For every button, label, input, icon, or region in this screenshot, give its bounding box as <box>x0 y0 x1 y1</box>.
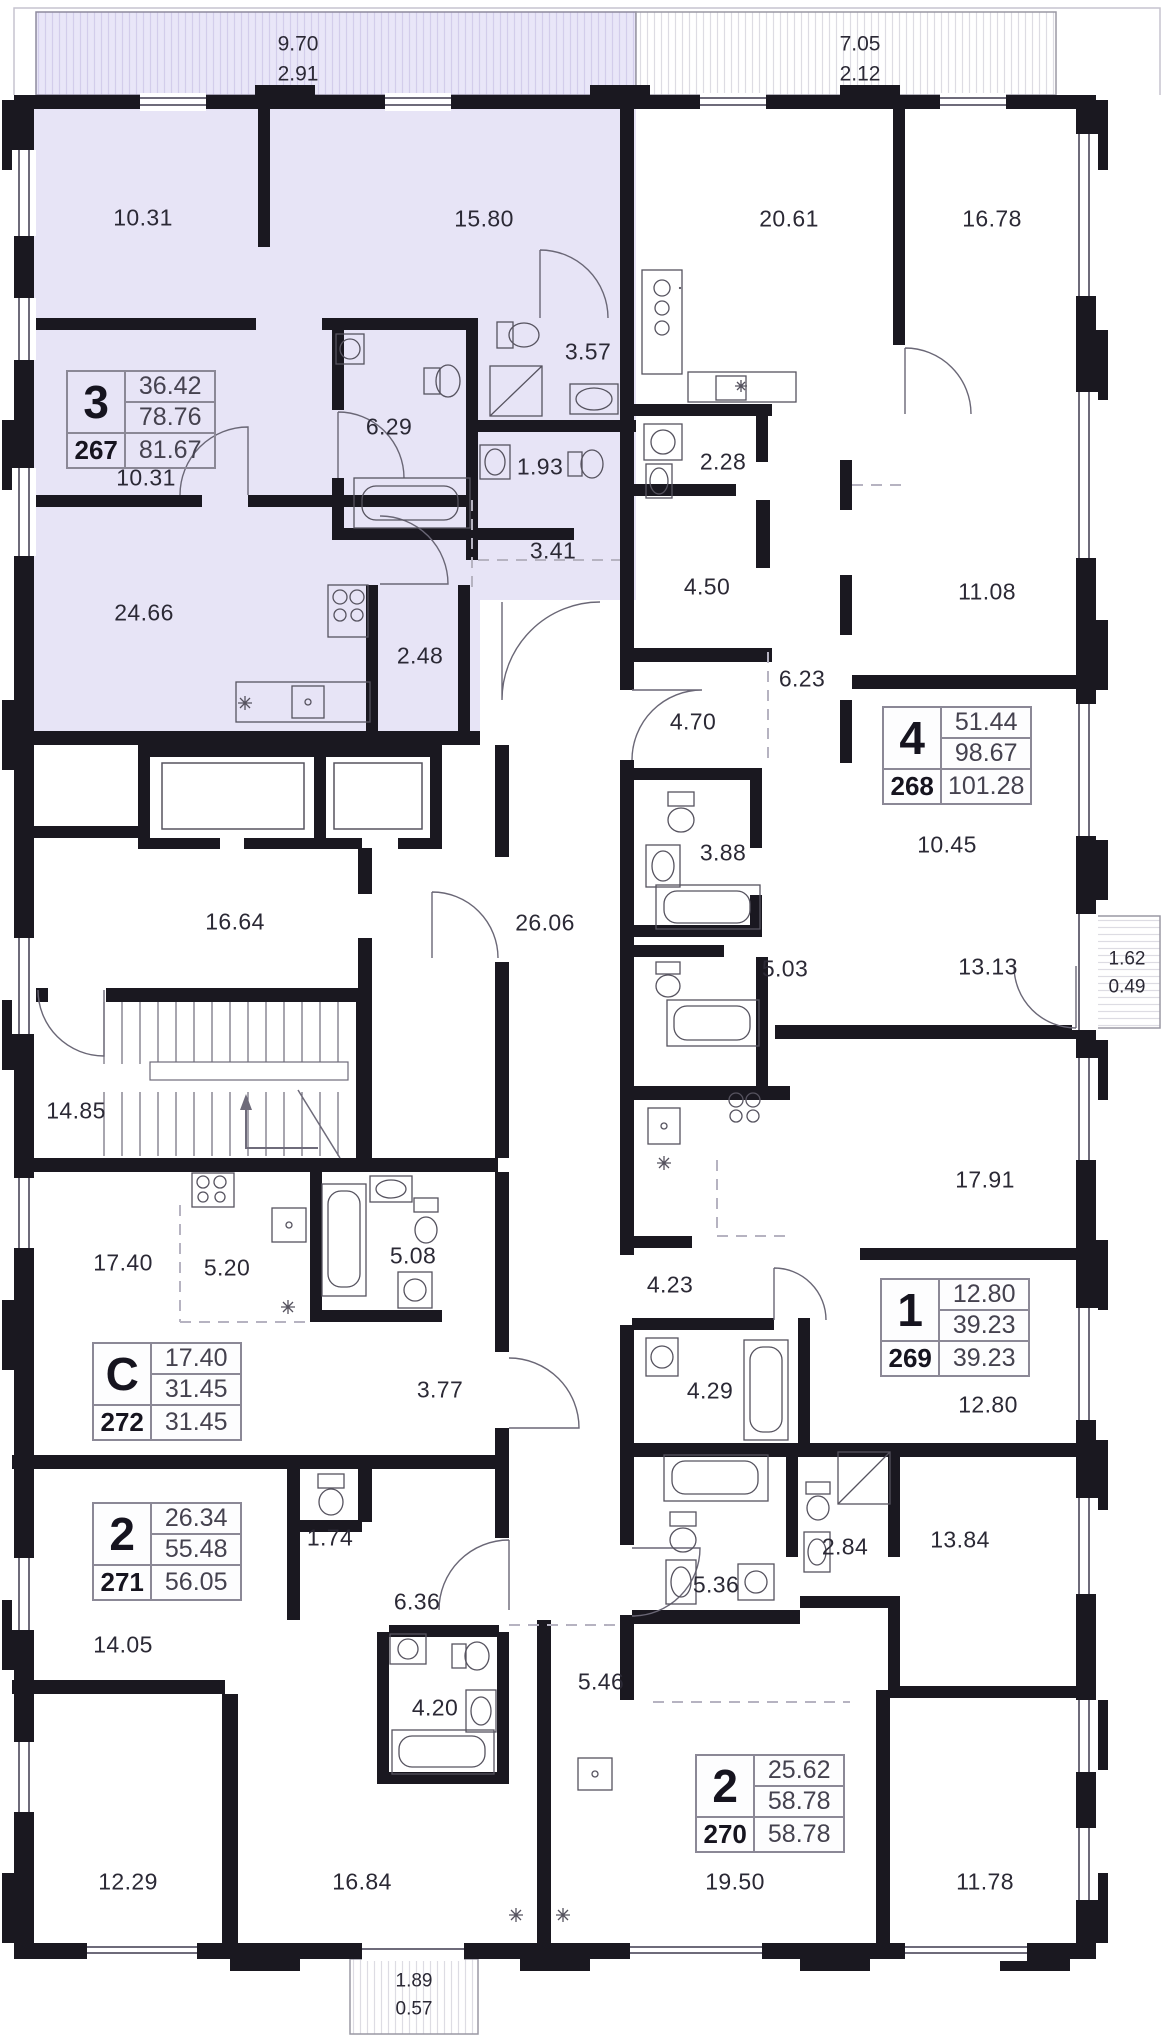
unit-base-area: 98.67 <box>942 739 1030 770</box>
unit-rooms-count: 2 <box>94 1504 152 1566</box>
unit-living-area: 26.34 <box>152 1504 240 1535</box>
balcony-reduced-area-value: 0.49 <box>1109 973 1146 1001</box>
room-area-label: 5.08 <box>390 1243 436 1270</box>
unit-rooms-count: 4 <box>884 708 942 770</box>
unit-card-270[interactable]: 225.6258.7827058.78 <box>695 1754 845 1853</box>
room-area-label: 3.41 <box>530 538 576 565</box>
room-area-label: 11.08 <box>958 579 1016 606</box>
room-area-label: 2.84 <box>822 1534 868 1561</box>
room-area-label: 20.61 <box>759 206 819 233</box>
room-area-label: 5.03 <box>762 956 808 983</box>
room-area-label: 4.50 <box>684 574 730 601</box>
unit-number: 270 <box>697 1818 755 1851</box>
unit-total-area: 39.23 <box>940 1342 1028 1375</box>
unit-card-272[interactable]: C17.4031.4527231.45 <box>92 1342 242 1441</box>
room-area-label: 3.88 <box>700 840 746 867</box>
room-area-label: 12.80 <box>958 1392 1018 1419</box>
unit-base-area: 58.78 <box>755 1787 843 1818</box>
room-area-label: 16.84 <box>332 1869 392 1896</box>
unit-card-267[interactable]: 336.4278.7626781.67 <box>66 370 216 469</box>
room-area-label: 2.28 <box>700 449 746 476</box>
unit-number: 269 <box>882 1342 940 1375</box>
room-area-label: 26.06 <box>515 910 575 937</box>
balcony-top-left-label: 9.702.91 <box>278 30 319 91</box>
room-area-label: 4.29 <box>687 1378 733 1405</box>
room-area-label: 17.40 <box>93 1250 153 1277</box>
room-area-label: 5.46 <box>578 1669 624 1696</box>
unit-living-area: 17.40 <box>152 1344 240 1375</box>
unit-number: 271 <box>94 1566 152 1599</box>
room-area-label: 14.85 <box>46 1098 106 1125</box>
room-area-label: 2.48 <box>397 643 443 670</box>
balcony-area-value: 7.05 <box>840 30 881 60</box>
unit-total-area: 56.05 <box>152 1566 240 1599</box>
room-area-label: 3.77 <box>417 1377 463 1404</box>
room-area-label: 11.78 <box>956 1869 1014 1896</box>
room-area-label: 4.23 <box>647 1272 693 1299</box>
unit-living-area: 12.80 <box>940 1280 1028 1311</box>
unit-number: 267 <box>68 434 126 467</box>
balcony-area-value: 1.62 <box>1109 945 1146 973</box>
room-area-label: 5.20 <box>204 1255 250 1282</box>
unit-rooms-count: 2 <box>697 1756 755 1818</box>
unit-card-269[interactable]: 112.8039.2326939.23 <box>880 1278 1030 1377</box>
balcony-area-value: 1.89 <box>396 1967 433 1995</box>
unit-total-area: 101.28 <box>942 770 1030 803</box>
unit-living-area: 51.44 <box>942 708 1030 739</box>
room-area-label: 16.78 <box>962 206 1022 233</box>
room-area-label: 5.36 <box>693 1572 739 1599</box>
room-area-label: 6.29 <box>366 414 412 441</box>
unit-number: 272 <box>94 1406 152 1439</box>
room-area-label: 19.50 <box>705 1869 765 1896</box>
room-area-label: 10.45 <box>917 832 977 859</box>
balcony-reduced-area-value: 0.57 <box>396 1995 433 2023</box>
room-area-label: 10.31 <box>113 205 173 232</box>
unit-base-area: 55.48 <box>152 1535 240 1566</box>
balcony-right-label: 1.620.49 <box>1109 945 1146 1000</box>
unit-living-area: 36.42 <box>126 372 214 403</box>
room-area-label: 13.13 <box>958 954 1018 981</box>
floor-plan: 10.3115.8020.6116.783.576.291.932.2810.3… <box>0 0 1166 2036</box>
room-area-label: 6.36 <box>394 1589 440 1616</box>
room-area-label: 12.29 <box>98 1869 158 1896</box>
unit-rooms-count: 3 <box>68 372 126 434</box>
balcony-top-right-label: 7.052.12 <box>840 30 881 91</box>
room-area-label: 4.20 <box>412 1695 458 1722</box>
balcony-reduced-area-value: 2.91 <box>278 60 319 90</box>
unit-total-area: 31.45 <box>152 1406 240 1439</box>
unit-living-area: 25.62 <box>755 1756 843 1787</box>
room-area-label: 1.93 <box>517 454 563 481</box>
unit-rooms-count: C <box>94 1344 152 1406</box>
room-area-label: 16.64 <box>205 909 265 936</box>
unit-base-area: 39.23 <box>940 1311 1028 1342</box>
balcony-area-value: 9.70 <box>278 30 319 60</box>
room-area-label: 3.57 <box>565 339 611 366</box>
unit-number: 268 <box>884 770 942 803</box>
unit-total-area: 81.67 <box>126 434 214 467</box>
unit-total-area: 58.78 <box>755 1818 843 1851</box>
room-area-label: 15.80 <box>454 206 514 233</box>
room-area-label: 1.74 <box>307 1525 353 1552</box>
unit-card-268[interactable]: 451.4498.67268101.28 <box>882 706 1032 805</box>
unit-card-271[interactable]: 226.3455.4827156.05 <box>92 1502 242 1601</box>
room-area-label: 4.70 <box>670 709 716 736</box>
unit-base-area: 31.45 <box>152 1375 240 1406</box>
unit-base-area: 78.76 <box>126 403 214 434</box>
labels-layer: 10.3115.8020.6116.783.576.291.932.2810.3… <box>0 0 1166 2036</box>
room-area-label: 17.91 <box>955 1167 1015 1194</box>
balcony-reduced-area-value: 2.12 <box>840 60 881 90</box>
balcony-bottom-label: 1.890.57 <box>396 1967 433 2022</box>
room-area-label: 24.66 <box>114 600 174 627</box>
unit-rooms-count: 1 <box>882 1280 940 1342</box>
room-area-label: 14.05 <box>93 1632 153 1659</box>
room-area-label: 13.84 <box>930 1527 990 1554</box>
room-area-label: 6.23 <box>779 666 825 693</box>
